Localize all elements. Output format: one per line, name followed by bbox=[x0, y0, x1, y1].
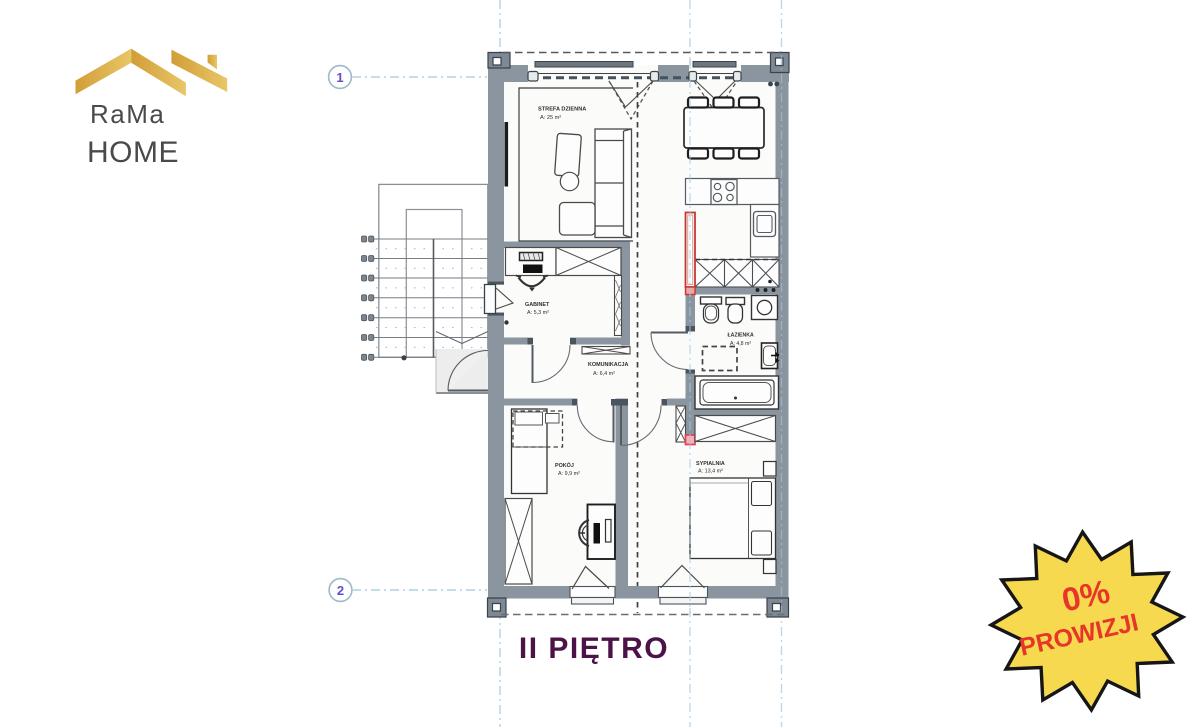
svg-text:1: 1 bbox=[336, 70, 343, 85]
svg-text:A: 4,8 m²: A: 4,8 m² bbox=[730, 341, 751, 347]
svg-text:HOME: HOME bbox=[87, 136, 179, 169]
svg-text:A: 25 m²: A: 25 m² bbox=[540, 115, 561, 121]
svg-text:2: 2 bbox=[337, 583, 344, 598]
svg-text:A: 6,4 m²: A: 6,4 m² bbox=[593, 371, 615, 377]
svg-text:A: 9,9 m²: A: 9,9 m² bbox=[558, 471, 580, 477]
svg-text:STREFA DZIENNA: STREFA DZIENNA bbox=[538, 107, 586, 113]
svg-text:RaMa: RaMa bbox=[90, 99, 165, 129]
svg-text:A: 5,3 m²: A: 5,3 m² bbox=[527, 310, 549, 316]
svg-text:SYPIALNIA: SYPIALNIA bbox=[696, 461, 725, 467]
svg-text:II PIĘTRO: II PIĘTRO bbox=[519, 632, 669, 665]
svg-text:POKÓJ: POKÓJ bbox=[555, 461, 574, 469]
svg-text:A: 13,4 m²: A: 13,4 m² bbox=[698, 469, 723, 475]
svg-text:GABINET: GABINET bbox=[525, 302, 550, 308]
svg-text:ŁAZIENKA: ŁAZIENKA bbox=[728, 333, 754, 339]
svg-text:KOMUNIKACJA: KOMUNIKACJA bbox=[588, 362, 629, 368]
